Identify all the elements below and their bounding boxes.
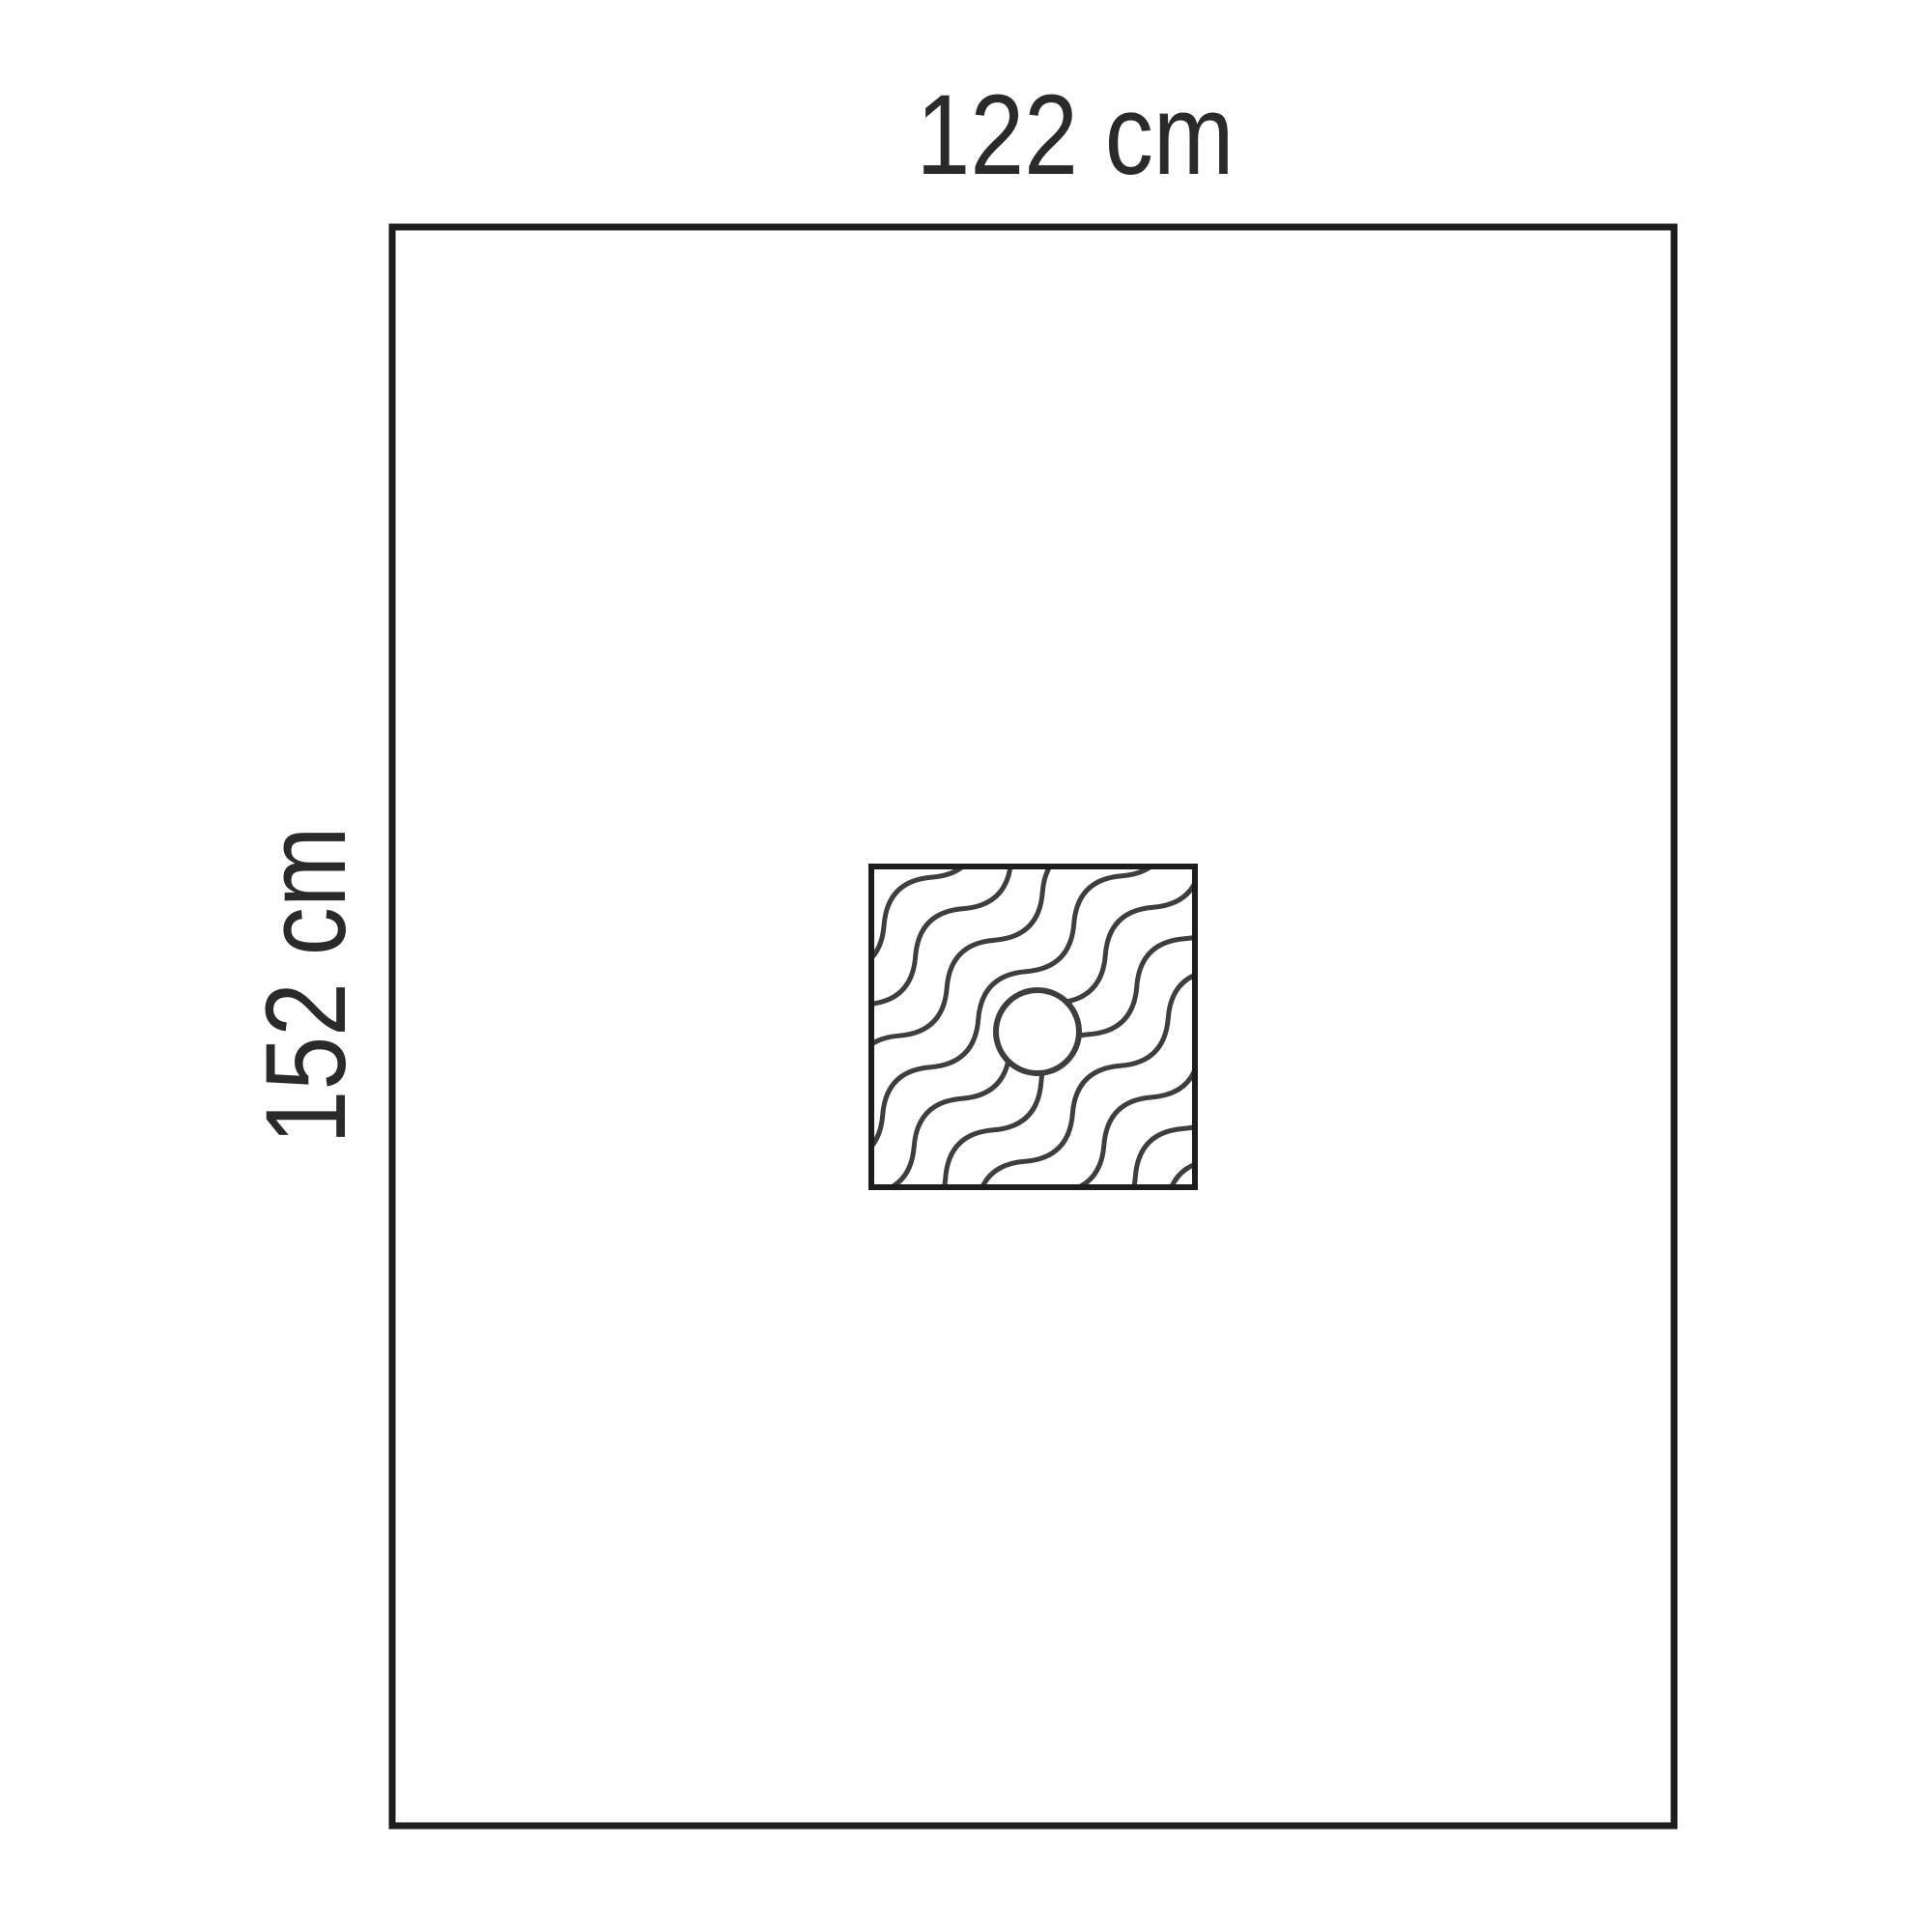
drape-diagram-svg: 122 cm 152 cm [0, 0, 1932, 1932]
diagram-canvas: 122 cm 152 cm [0, 0, 1932, 1932]
height-dimension-label: 152 cm [242, 827, 369, 1145]
width-dimension-label: 122 cm [917, 71, 1235, 198]
fenestration-hole [996, 990, 1079, 1073]
